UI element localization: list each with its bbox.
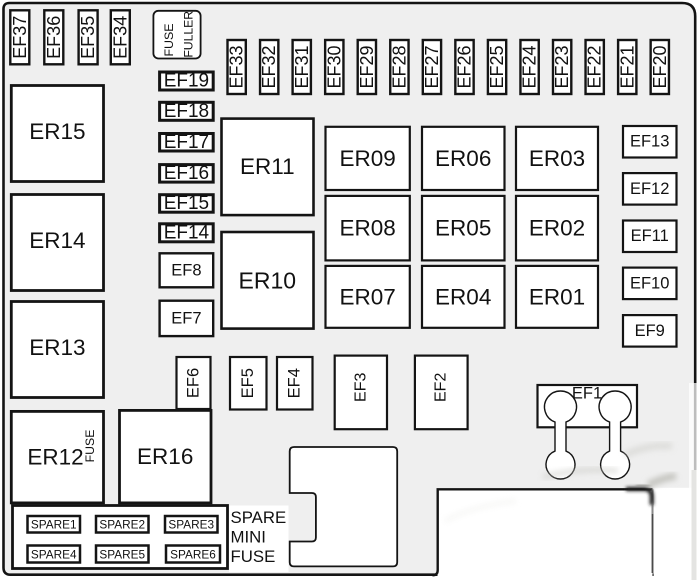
svg-text:EF3: EF3 [353, 373, 370, 402]
svg-text:EF23: EF23 [552, 45, 572, 88]
svg-text:EF11: EF11 [631, 227, 669, 245]
svg-text:ER08: ER08 [339, 216, 395, 241]
svg-text:EF12: EF12 [630, 180, 669, 198]
svg-text:EF5: EF5 [239, 368, 257, 398]
svg-text:ER15: ER15 [29, 119, 85, 144]
svg-text:SPARE3: SPARE3 [168, 518, 214, 532]
svg-text:SPARE4: SPARE4 [31, 547, 77, 561]
svg-text:ER06: ER06 [435, 146, 491, 171]
svg-text:EF34: EF34 [110, 16, 130, 59]
svg-text:FULLER: FULLER [181, 11, 195, 58]
svg-text:ER10: ER10 [239, 268, 297, 294]
svg-text:EF25: EF25 [487, 45, 507, 88]
svg-text:EF18: EF18 [164, 101, 209, 122]
svg-text:EF32: EF32 [259, 45, 279, 88]
svg-text:EF8: EF8 [171, 261, 201, 279]
svg-text:SPARE2: SPARE2 [99, 518, 145, 532]
svg-text:ER05: ER05 [435, 216, 491, 241]
svg-text:EF1: EF1 [572, 385, 602, 403]
svg-text:ER07: ER07 [339, 284, 395, 309]
svg-text:ER12: ER12 [27, 445, 83, 470]
svg-text:EF15: EF15 [164, 193, 209, 214]
svg-text:EF35: EF35 [78, 16, 98, 59]
svg-text:EF19: EF19 [164, 71, 209, 92]
svg-text:EF16: EF16 [164, 163, 209, 184]
svg-text:EF6: EF6 [185, 368, 203, 398]
svg-text:SPARE6: SPARE6 [170, 547, 216, 561]
svg-text:EF21: EF21 [617, 45, 637, 88]
svg-text:FUSE: FUSE [83, 430, 97, 463]
svg-text:FUSE: FUSE [231, 547, 276, 566]
svg-text:EF17: EF17 [164, 132, 209, 153]
svg-text:EF33: EF33 [227, 45, 247, 88]
svg-text:ER11: ER11 [240, 154, 295, 179]
svg-text:EF37: EF37 [10, 16, 30, 59]
svg-text:FUSE: FUSE [162, 23, 176, 56]
svg-text:SPARE: SPARE [231, 508, 287, 527]
svg-text:MINI: MINI [231, 528, 266, 547]
svg-text:ER16: ER16 [137, 444, 193, 469]
svg-text:EF2: EF2 [433, 373, 450, 402]
svg-text:SPARE5: SPARE5 [99, 547, 145, 561]
svg-text:ER14: ER14 [29, 228, 85, 253]
svg-text:EF30: EF30 [324, 45, 344, 88]
svg-text:EF27: EF27 [422, 45, 442, 88]
svg-text:EF28: EF28 [389, 45, 409, 88]
svg-text:EF36: EF36 [44, 16, 64, 59]
svg-text:EF24: EF24 [520, 45, 540, 88]
svg-text:EF7: EF7 [171, 309, 201, 327]
svg-text:EF13: EF13 [630, 133, 669, 151]
svg-text:EF14: EF14 [164, 222, 210, 243]
svg-text:EF4: EF4 [286, 368, 304, 398]
svg-text:EF9: EF9 [635, 322, 665, 340]
svg-text:ER02: ER02 [529, 216, 585, 241]
svg-text:EF22: EF22 [585, 45, 605, 88]
svg-text:EF31: EF31 [292, 45, 312, 88]
svg-text:ER09: ER09 [339, 146, 395, 171]
svg-text:ER13: ER13 [29, 335, 85, 360]
svg-text:EF29: EF29 [357, 45, 377, 88]
svg-text:ER01: ER01 [529, 284, 585, 309]
svg-text:ER03: ER03 [529, 146, 585, 171]
svg-text:SPARE1: SPARE1 [31, 518, 77, 532]
svg-text:EF20: EF20 [650, 45, 670, 88]
svg-text:EF10: EF10 [630, 274, 669, 292]
svg-text:EF26: EF26 [455, 45, 475, 88]
svg-text:ER04: ER04 [435, 284, 491, 309]
